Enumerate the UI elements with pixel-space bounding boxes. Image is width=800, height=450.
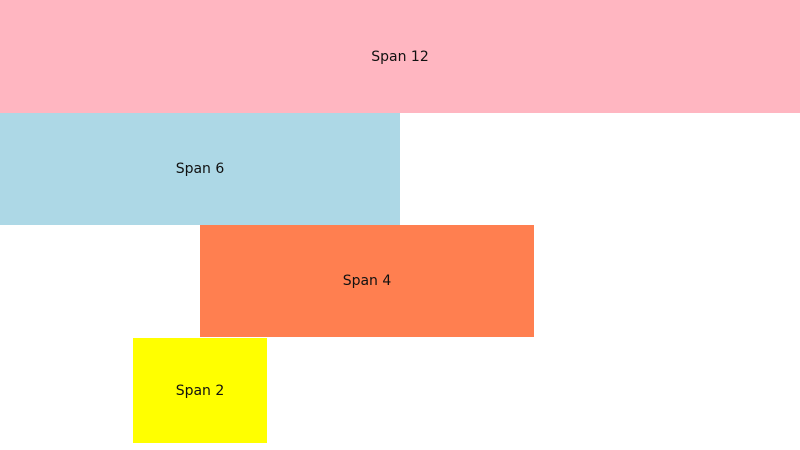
span-4-label: Span 4: [343, 273, 392, 289]
span-6-block: Span 6: [0, 113, 400, 225]
span-4-block: Span 4: [200, 225, 534, 337]
span-12-block: Span 12: [0, 0, 800, 113]
span-6-label: Span 6: [176, 161, 225, 177]
span-12-label: Span 12: [371, 49, 429, 65]
span-2-block: Span 2: [133, 338, 267, 443]
grid-span-demo-page: Span 12 Span 6 Span 4 Span 2: [0, 0, 800, 450]
span-2-label: Span 2: [176, 383, 225, 399]
